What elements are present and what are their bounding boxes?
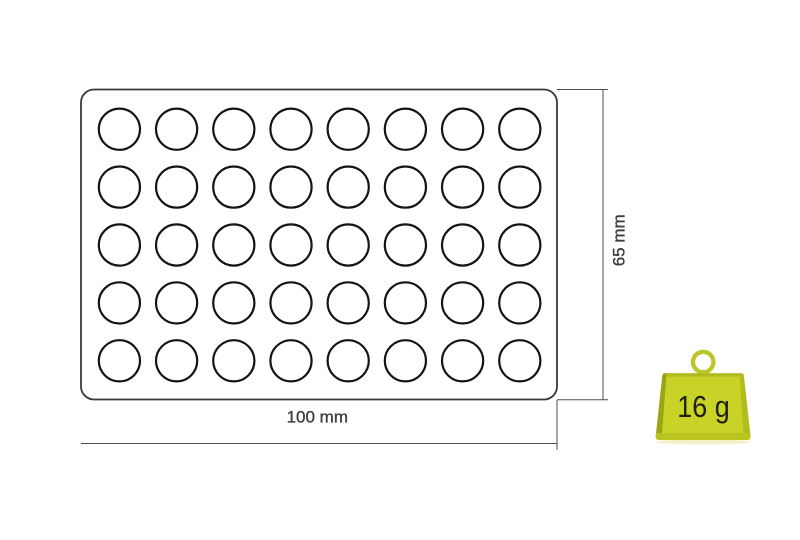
svg-text:16 g: 16 g [677,390,729,424]
svg-text:65 mm: 65 mm [610,214,629,266]
svg-text:100 mm: 100 mm [287,408,348,427]
